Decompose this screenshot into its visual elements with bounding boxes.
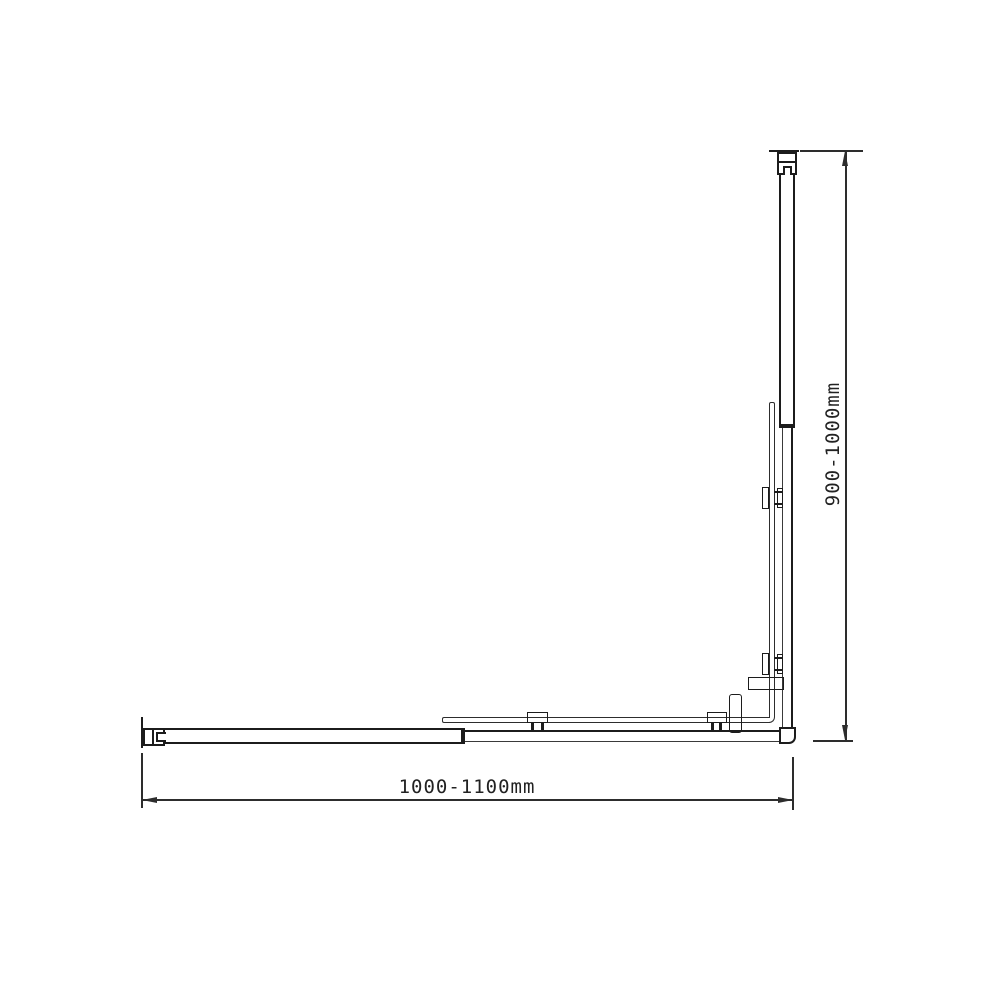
glass-clip-plate xyxy=(762,487,769,509)
drawing-canvas: 1000-1100mm 900-1000mm xyxy=(0,0,1000,1000)
corner-support-bracket xyxy=(748,677,784,690)
dimension-arrow-left xyxy=(142,797,157,803)
extension-line-bottom xyxy=(813,740,853,742)
extension-line-top xyxy=(800,150,863,152)
glass-clip-leg xyxy=(719,723,722,730)
left-bracket-inner-line xyxy=(152,729,154,745)
dimension-label-vertical: 900-1000mm xyxy=(822,314,844,574)
dimension-line-vertical xyxy=(845,151,847,740)
glass-clip-plate xyxy=(762,653,769,675)
horizontal-inner-rail xyxy=(465,730,781,742)
dimension-arrow-right xyxy=(778,797,793,803)
corner-joint-block xyxy=(779,727,796,744)
glass-clip-stem xyxy=(777,654,783,674)
glass-clip-leg xyxy=(531,723,534,730)
glass-clip-body xyxy=(707,712,727,723)
dimension-line-horizontal xyxy=(142,799,793,801)
glass-clip-leg xyxy=(711,723,714,730)
dimension-arrow-up xyxy=(842,151,848,166)
corner-support-post xyxy=(729,694,742,733)
top-bracket-notch xyxy=(783,166,792,175)
dimension-label-horizontal: 1000-1100mm xyxy=(337,776,597,798)
glass-clip-stem xyxy=(777,488,783,508)
left-bracket-notch xyxy=(156,732,166,742)
glass-clip-leg xyxy=(541,723,544,730)
top-bracket-inner-line xyxy=(778,161,796,163)
horizontal-outer-tube xyxy=(165,728,465,744)
dimension-arrow-down xyxy=(842,725,848,740)
vertical-outer-tube xyxy=(779,175,795,427)
glass-clip-body xyxy=(527,712,548,723)
